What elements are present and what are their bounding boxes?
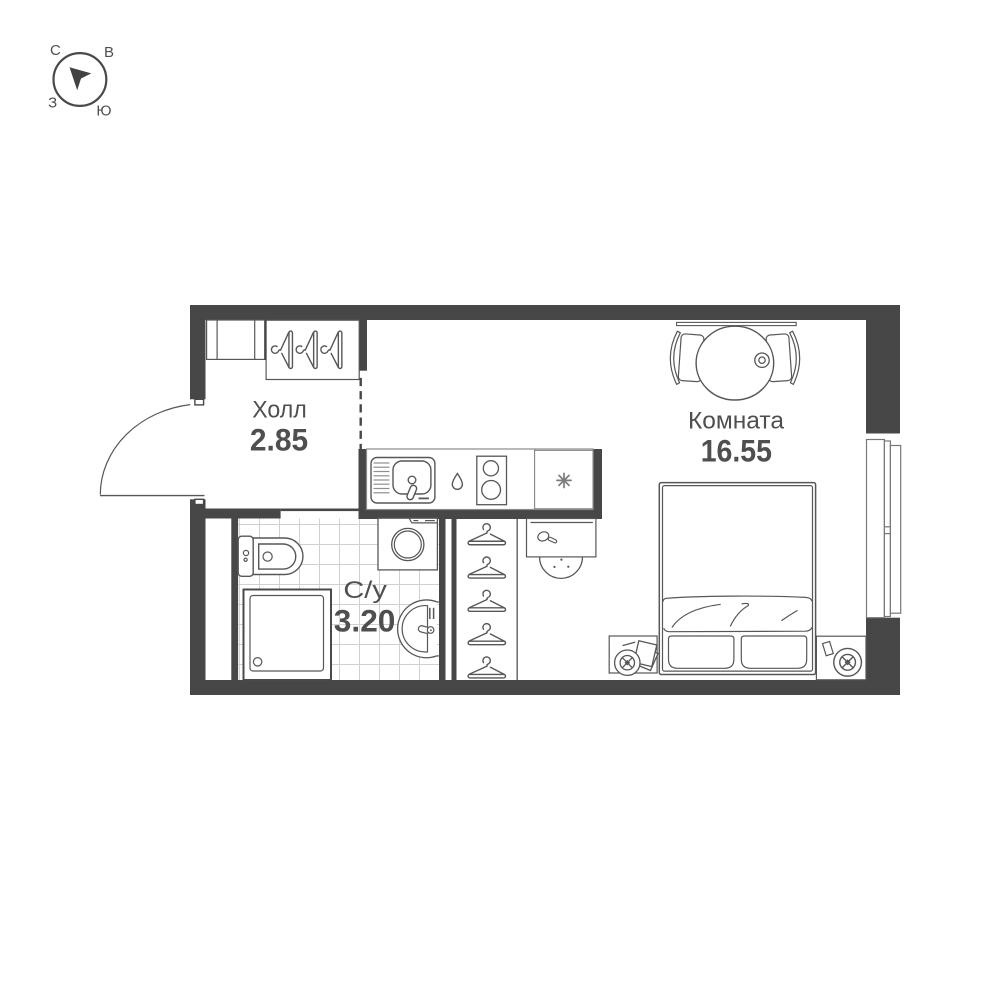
svg-text:С/у: С/у — [343, 577, 387, 604]
svg-text:Комната: Комната — [688, 408, 785, 435]
svg-text:Ю: Ю — [96, 103, 111, 120]
svg-text:2.85: 2.85 — [250, 421, 308, 457]
svg-text:16.55: 16.55 — [701, 432, 772, 468]
svg-text:3.20: 3.20 — [334, 602, 396, 638]
svg-text:В: В — [104, 44, 114, 61]
svg-text:З: З — [48, 95, 57, 112]
svg-text:С: С — [50, 42, 61, 59]
svg-text:Холл: Холл — [252, 396, 307, 423]
